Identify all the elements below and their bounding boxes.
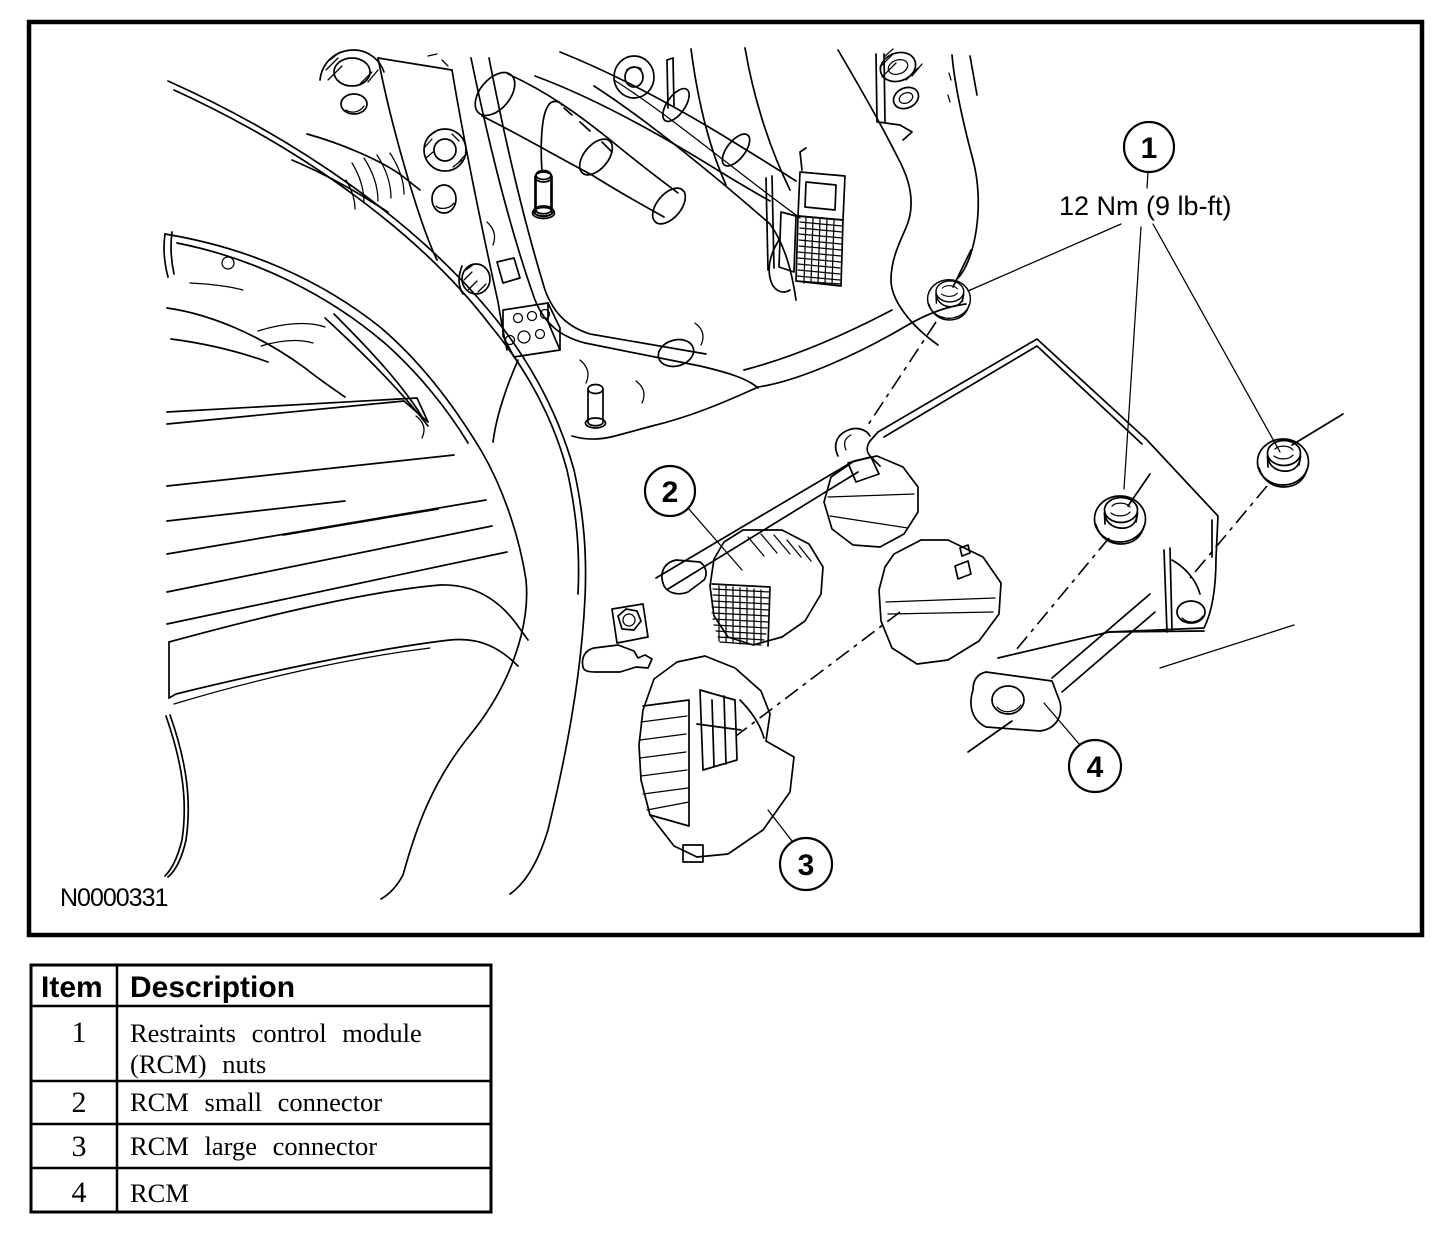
svg-text:4: 4	[1087, 751, 1104, 784]
svg-text:3: 3	[798, 849, 815, 882]
svg-text:1: 1	[72, 1016, 87, 1049]
svg-text:RCM large connector: RCM large connector	[130, 1131, 377, 1161]
svg-text:1: 1	[1141, 132, 1158, 165]
svg-text:12 Nm (9 lb-ft): 12 Nm (9 lb-ft)	[1059, 191, 1232, 221]
svg-text:RCM: RCM	[130, 1178, 189, 1208]
svg-text:Restraints control module: Restraints control module	[130, 1018, 422, 1048]
svg-text:2: 2	[72, 1086, 87, 1119]
svg-text:Item: Item	[41, 971, 103, 1004]
svg-text:N0000331: N0000331	[60, 884, 167, 912]
svg-text:4: 4	[72, 1176, 87, 1209]
svg-text:3: 3	[72, 1130, 87, 1163]
svg-text:2: 2	[662, 476, 679, 509]
svg-text:Description: Description	[130, 971, 295, 1004]
svg-text:(RCM) nuts: (RCM) nuts	[130, 1049, 266, 1079]
svg-text:RCM small connector: RCM small connector	[130, 1087, 382, 1117]
